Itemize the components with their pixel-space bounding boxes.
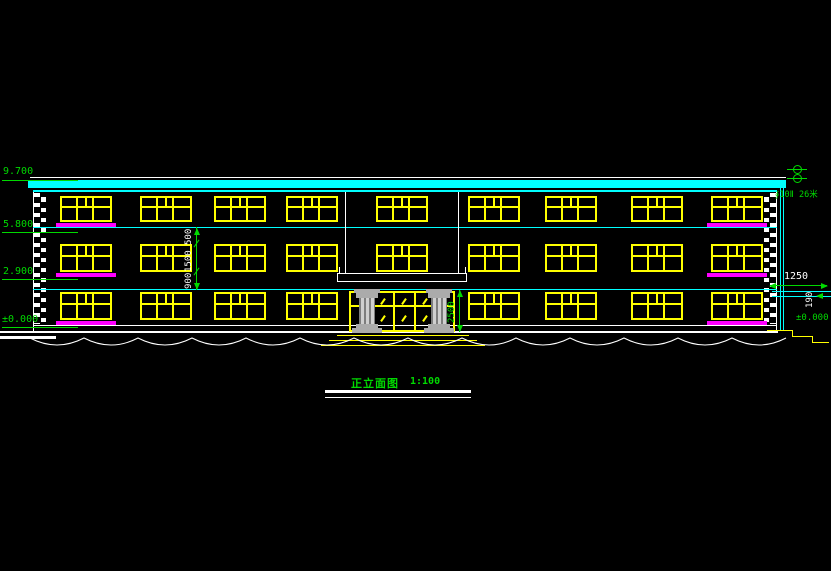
window-mullion — [62, 255, 110, 257]
window-mullion — [577, 198, 579, 220]
window-mullion — [239, 246, 241, 255]
window — [376, 244, 428, 272]
window — [140, 292, 192, 320]
window-mullion — [142, 206, 190, 208]
window-mullion — [288, 255, 336, 257]
window — [711, 244, 763, 272]
datum-symbol-icon — [793, 165, 802, 174]
door-swing-mark — [380, 298, 386, 305]
window-mullion — [76, 294, 78, 318]
door-swing-mark — [380, 315, 386, 322]
window-mullion — [62, 303, 110, 305]
window — [60, 244, 112, 272]
window-mullion — [663, 246, 665, 270]
window-mullion — [165, 198, 167, 206]
window-mullion — [165, 246, 167, 255]
level-line-roof — [2, 180, 78, 181]
window-mullion — [246, 198, 248, 220]
window — [545, 244, 597, 272]
window-mullion — [500, 198, 502, 220]
window-mullion — [302, 246, 304, 270]
window-mullion — [736, 246, 738, 255]
level-label-ground: ±0.000 — [2, 315, 38, 325]
window-mullion — [172, 198, 174, 220]
window-mullion — [318, 198, 320, 220]
window-mullion — [736, 294, 738, 303]
door-swing-mark — [422, 298, 428, 305]
door-mullion — [414, 293, 416, 330]
side-step — [812, 342, 829, 343]
dimension-label-900: 900 — [185, 271, 194, 289]
dimension-arrow — [457, 290, 463, 297]
window-sill — [56, 223, 116, 227]
dimension-arrow — [769, 283, 776, 289]
window-mullion — [647, 246, 649, 270]
dimension-arrow — [194, 283, 200, 290]
window-mullion — [743, 246, 745, 270]
window-mullion — [142, 303, 190, 305]
window-mullion — [401, 246, 403, 255]
window — [711, 196, 763, 222]
window — [631, 292, 683, 320]
entrance-dimension-label: 2500 — [448, 297, 457, 323]
window-mullion — [493, 246, 495, 255]
window-mullion — [85, 198, 87, 206]
window-mullion — [76, 246, 78, 270]
window-mullion — [561, 246, 563, 270]
window-mullion — [570, 294, 572, 303]
window-mullion — [470, 303, 518, 305]
window — [286, 292, 338, 320]
window — [286, 196, 338, 222]
window-sill — [707, 321, 767, 325]
window-mullion — [246, 294, 248, 318]
window-mullion — [318, 246, 320, 270]
window-mullion — [172, 246, 174, 270]
side-slab-line — [772, 291, 831, 292]
window — [286, 244, 338, 272]
right-ground-level-label: ±0.000 — [796, 314, 829, 323]
window — [214, 292, 266, 320]
level-line-floor3 — [2, 232, 78, 233]
title-underline-thin — [325, 397, 471, 398]
window-sill — [707, 273, 767, 277]
window-mullion — [547, 206, 595, 208]
entrance-bay-line-right — [458, 192, 459, 273]
dimension-label-1500: 1500 — [185, 246, 194, 272]
window-mullion — [239, 198, 241, 206]
side-step — [767, 330, 793, 331]
window-mullion — [500, 294, 502, 318]
window-mullion — [85, 246, 87, 255]
window-mullion — [85, 294, 87, 303]
window-mullion — [288, 206, 336, 208]
window-mullion — [76, 198, 78, 220]
rain-pipe — [780, 186, 784, 331]
window-mullion — [311, 198, 313, 206]
window-mullion — [401, 198, 403, 206]
window-mullion — [408, 198, 410, 220]
window-mullion — [484, 198, 486, 220]
window-mullion — [727, 246, 729, 270]
level-label-floor2: 2.900 — [3, 267, 33, 277]
window-mullion — [408, 246, 410, 270]
window-sill — [707, 223, 767, 227]
drawing-scale: 1:100 — [410, 376, 440, 387]
window-mullion — [470, 255, 518, 257]
drawing-title: 正立面图 — [351, 375, 399, 391]
window-mullion — [663, 294, 665, 318]
window — [140, 196, 192, 222]
window — [468, 196, 520, 222]
window-mullion — [318, 294, 320, 318]
window-mullion — [484, 246, 486, 270]
window-mullion — [633, 206, 681, 208]
column-shaft — [359, 298, 375, 324]
window-mullion — [570, 246, 572, 255]
window-mullion — [239, 294, 241, 303]
window-mullion — [470, 206, 518, 208]
window-sill — [56, 321, 116, 325]
window-mullion — [713, 303, 761, 305]
elevation-generated-layer — [0, 0, 831, 571]
column-plinth — [424, 328, 454, 333]
door-mullion — [393, 293, 395, 330]
window-mullion — [577, 246, 579, 270]
window-mullion — [577, 294, 579, 318]
window-mullion — [656, 294, 658, 303]
window-mullion — [62, 206, 110, 208]
window — [214, 244, 266, 272]
window-mullion — [727, 294, 729, 318]
dimension-arrow — [194, 228, 200, 235]
window-mullion — [142, 255, 190, 257]
window-mullion — [713, 206, 761, 208]
window — [376, 196, 428, 222]
window-mullion — [246, 246, 248, 270]
window-mullion — [302, 198, 304, 220]
dimension-chain-line — [196, 227, 197, 290]
thickness-dimension-label: 190 — [806, 290, 815, 308]
level-label-floor3: 5.800 — [3, 220, 33, 230]
cad-canvas: 9.700 5.800 2.900 ±0.000 500 1500 900 25… — [0, 0, 831, 571]
window-mullion — [633, 303, 681, 305]
window-mullion — [216, 255, 264, 257]
window-mullion — [216, 206, 264, 208]
window-mullion — [656, 246, 658, 255]
dimension-arrow — [816, 293, 823, 299]
window — [60, 292, 112, 320]
window-mullion — [378, 206, 426, 208]
entrance-step — [337, 335, 469, 336]
window-mullion — [727, 198, 729, 220]
window-mullion — [647, 294, 649, 318]
window-mullion — [165, 294, 167, 303]
door-swing-mark — [401, 298, 407, 305]
dimension-label-500: 500 — [185, 229, 194, 245]
window-mullion — [92, 198, 94, 220]
window — [60, 196, 112, 222]
entrance-canopy — [337, 273, 467, 282]
window — [468, 292, 520, 320]
datum-symbol-icon — [793, 174, 802, 183]
dimension-arrow — [457, 325, 463, 332]
window-mullion — [561, 198, 563, 220]
dimension-arrow — [821, 283, 828, 289]
window-mullion — [392, 246, 394, 270]
column-plinth — [352, 328, 382, 333]
window-mullion — [311, 246, 313, 255]
door-swing-mark — [422, 315, 428, 322]
window — [545, 292, 597, 320]
window — [214, 196, 266, 222]
window-mullion — [663, 198, 665, 220]
window-mullion — [743, 294, 745, 318]
window-mullion — [484, 294, 486, 318]
window-mullion — [392, 198, 394, 220]
window-mullion — [302, 294, 304, 318]
window-mullion — [156, 198, 158, 220]
window-mullion — [561, 294, 563, 318]
window-mullion — [172, 294, 174, 318]
window-mullion — [743, 198, 745, 220]
window-mullion — [288, 303, 336, 305]
door-swing-mark — [401, 315, 407, 322]
level-label-roof: 9.700 — [3, 167, 33, 177]
window-mullion — [633, 255, 681, 257]
window-mullion — [500, 246, 502, 270]
window-mullion — [378, 255, 426, 257]
side-step — [792, 336, 813, 337]
window-mullion — [570, 198, 572, 206]
window-mullion — [547, 303, 595, 305]
rain-pipe-note: ∮10Ⅱ 26米 — [775, 191, 818, 200]
offset-dimension-line — [770, 285, 827, 286]
window-mullion — [92, 294, 94, 318]
window-mullion — [547, 255, 595, 257]
level-line-floor2 — [2, 279, 78, 280]
window — [468, 244, 520, 272]
window-mullion — [156, 246, 158, 270]
window-mullion — [647, 198, 649, 220]
level-line-ground — [2, 327, 78, 328]
window-mullion — [230, 294, 232, 318]
window-mullion — [736, 198, 738, 206]
window-mullion — [493, 198, 495, 206]
window-mullion — [216, 303, 264, 305]
offset-dimension-label: 1250 — [784, 272, 808, 282]
window-mullion — [493, 294, 495, 303]
title-underline-thick — [325, 390, 471, 393]
column-shaft — [431, 298, 447, 324]
window — [545, 196, 597, 222]
window-mullion — [713, 255, 761, 257]
window-mullion — [656, 198, 658, 206]
window-mullion — [230, 198, 232, 220]
window-mullion — [230, 246, 232, 270]
window — [631, 196, 683, 222]
window — [711, 292, 763, 320]
window-mullion — [92, 246, 94, 270]
window-mullion — [311, 294, 313, 303]
ground-break-line — [30, 337, 788, 357]
window-sill — [56, 273, 116, 277]
entrance-bay-line-left — [345, 192, 346, 273]
window — [631, 244, 683, 272]
ground-break-path — [30, 338, 786, 345]
window-mullion — [156, 294, 158, 318]
